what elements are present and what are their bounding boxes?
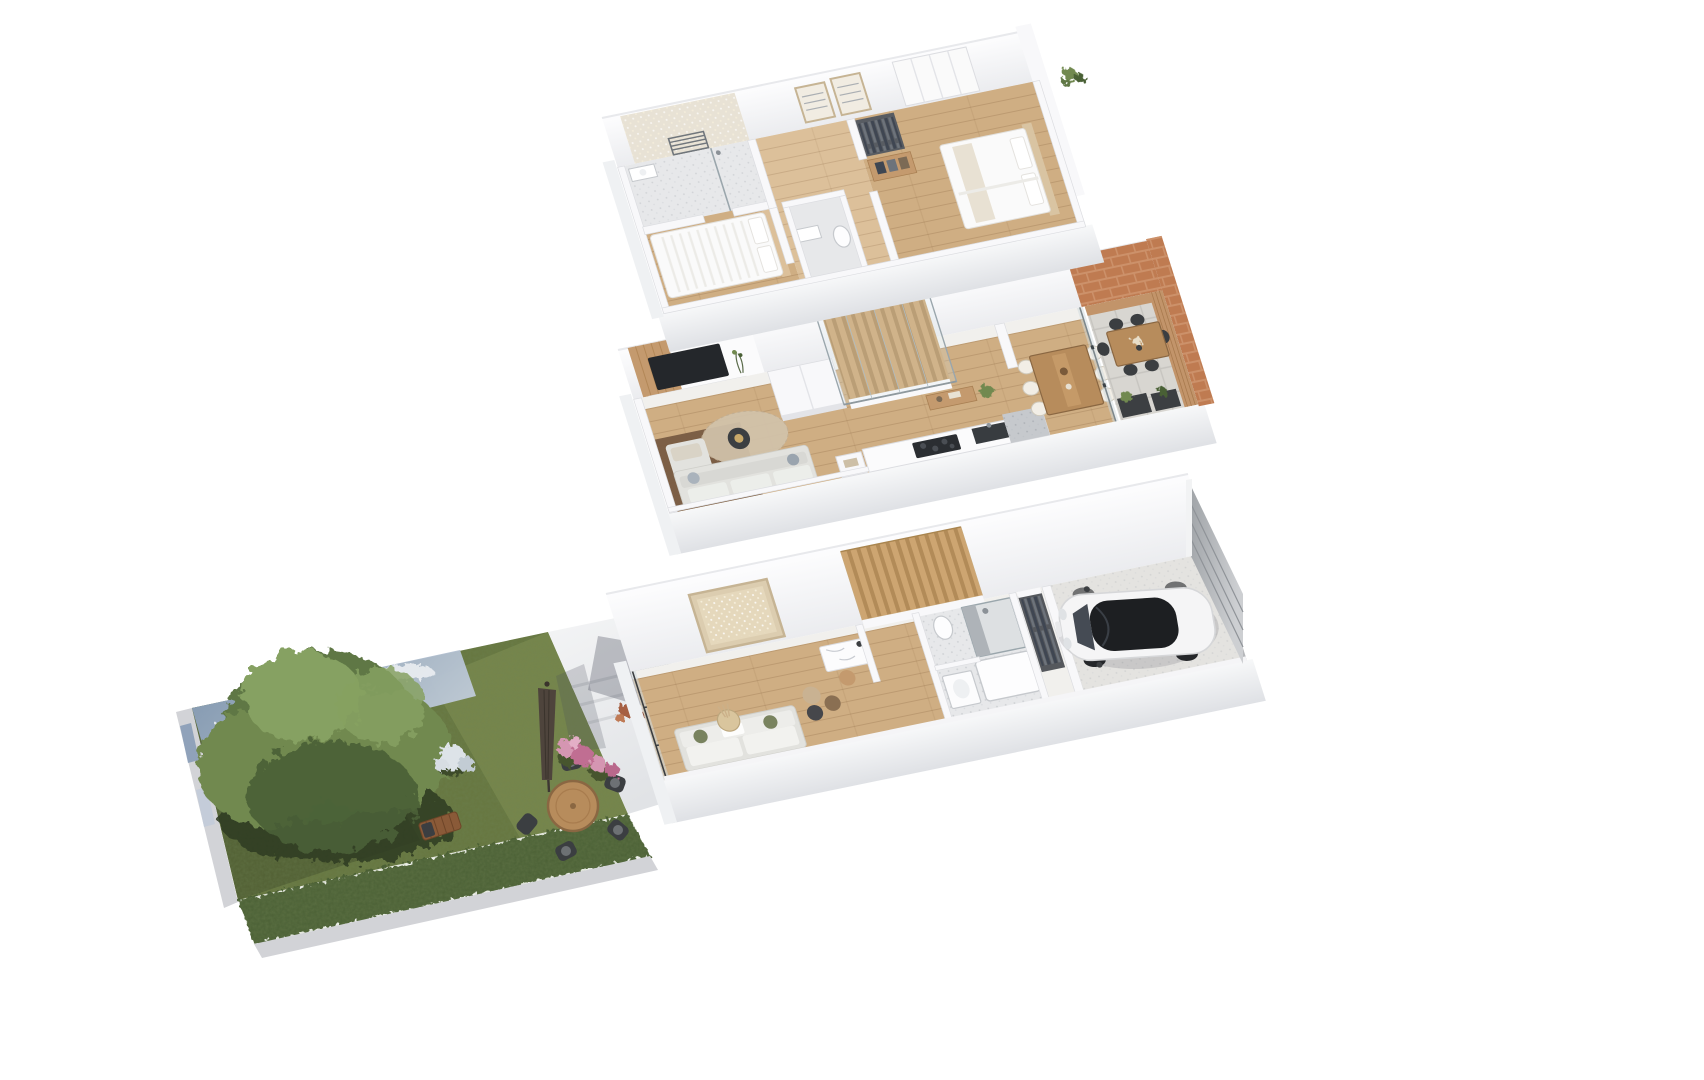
parapet-plant [1058,65,1087,88]
render-stage [0,0,1704,1080]
tree [197,650,454,864]
floorplan-scene [0,0,1704,1080]
